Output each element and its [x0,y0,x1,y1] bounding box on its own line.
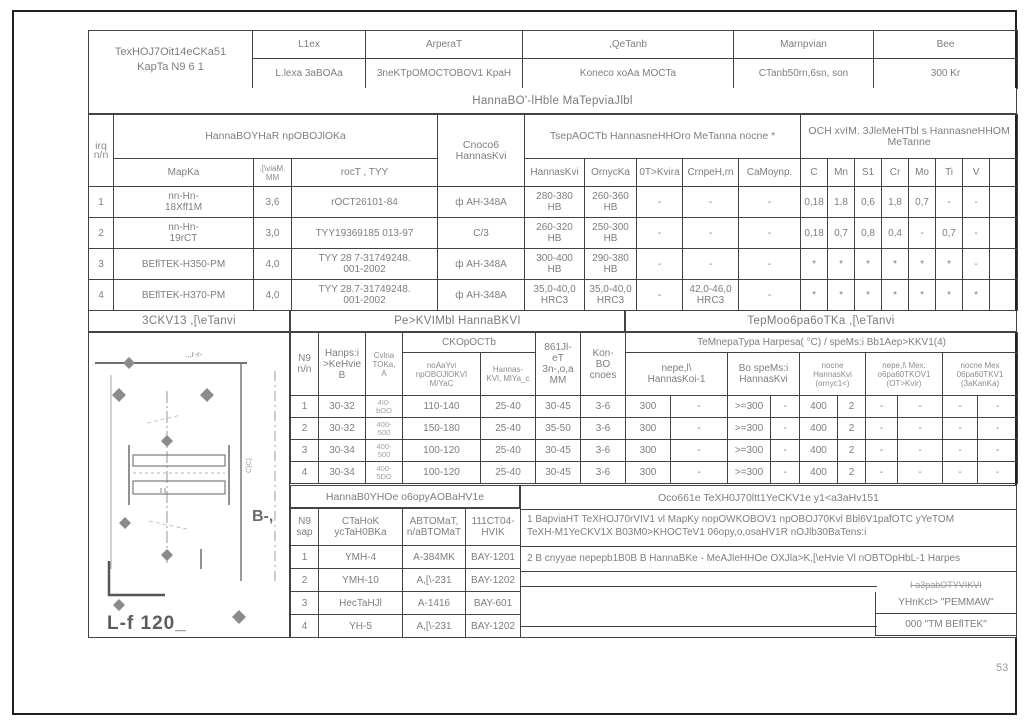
cell: YMH-4 [319,546,403,569]
cell: - [898,396,943,418]
cell: * [936,280,963,311]
equip-source-header: 111CT04- HVIK [466,509,521,546]
table-row: 230-32400- 500150-18025-4035-503-6300->=… [291,418,1018,440]
cell: - [866,462,898,484]
cell: - [963,187,990,218]
surfacing-speed-header: Hannas- KVl, MlYa_c [481,353,536,396]
cell: * [801,280,828,311]
col-header-weight: Bee [874,31,1018,59]
cell: ф AH-348A [438,187,525,218]
part-sketch: ..,r-r- C)C) B-, L-f 120_ [89,333,289,637]
method-header: Cnoco6 HannasKvi [438,115,525,187]
cell: 1 [291,546,319,569]
cell: * [909,280,936,311]
cell: - [637,187,683,218]
cell: 2 [838,462,866,484]
cell: A,[\-231 [403,615,466,638]
cell [990,280,1018,311]
cell: - [683,187,739,218]
cell: * [882,280,909,311]
cell: 260-320 HB [525,218,585,249]
dimension-label: L-f 120_ [107,613,187,634]
cell: - [637,218,683,249]
cell: 0,18 [801,218,828,249]
cell: * [855,280,882,311]
cell: YMH-10 [319,569,403,592]
cell: C/3 [438,218,525,249]
divider-line [521,626,877,627]
cell: - [978,440,1018,462]
layers-header: Kon- BO cnoes [581,333,626,396]
equip-machine-header: CTaHoK ycTaH0BKa [319,509,403,546]
cell: 2 [89,218,114,249]
cell: - [898,418,943,440]
cell: TYY 28.7-31749248. 001-2002 [292,280,438,311]
chem-col-blank [990,159,1018,187]
materials-num-header: irq n/n [89,115,114,187]
cell: 0,7 [909,187,936,218]
cell: 3 [89,249,114,280]
cell: 3-6 [581,440,626,462]
cell: >=300 [728,418,771,440]
wire-group-header: HannaBOYHaR npOBOJlOKa [114,115,438,159]
cell: - [739,280,801,311]
cell: * [801,249,828,280]
cell: rOCT26101-84 [292,187,438,218]
equipment-table: N9 sap CTaHoK ycTaH0BKa ABTOMaT, n/aBTOM… [290,508,521,638]
cell: BEflTEK-H350-PM [114,249,254,280]
cell: 4,0 [254,249,292,280]
cell: 2 [838,418,866,440]
cell: 30-34 [319,462,366,484]
cell: >=300 [728,462,771,484]
cell: - [739,218,801,249]
table-row: 2nn-Hn- 19rCT3,0TYY19369185 013-97C/3260… [89,218,1018,249]
cell: 290-380 HB [585,249,637,280]
cell: 100-120 [403,440,481,462]
table-row: 4YH-5A,[\-231BAY-1202 [291,615,521,638]
cell: - [739,187,801,218]
cell: 0,7 [828,218,855,249]
voltage-header: Hanps:i >KeHvie B [319,333,366,396]
cell: - [963,218,990,249]
cell: 30-45 [536,396,581,418]
cell: 25-40 [481,396,536,418]
view-label: B-, [252,508,273,525]
during-surfacing-header: Bo speMs:i HannasKvi [728,353,800,396]
cell: * [909,249,936,280]
electrode-header: 861Jl- eT 3n-,o,a MM [536,333,581,396]
cell: 30-34 [319,440,366,462]
chem-col-ti: Ti [936,159,963,187]
cell: >=300 [728,396,771,418]
cell: - [671,462,728,484]
developers-box: l-a3pabOTYVIKVI YHnKct> "PEMMAW" 000 "TM… [875,578,1017,636]
chem-col-c: C [801,159,828,187]
hardness-col-aging: CrnpeH,rn [683,159,739,187]
sketch-small-label: C)C) [246,458,253,473]
cell: 400 [800,440,838,462]
cell: 4 [89,280,114,311]
cell: - [866,396,898,418]
hardness-col-annealing: 0T>Kvira [637,159,683,187]
cell: - [943,440,978,462]
cell: A,[\-231 [403,569,466,592]
developers-header: l-a3pabOTYVIKVI [875,578,1017,592]
cell: YH-5 [319,615,403,638]
before-surfacing-header: nepe,l\ HannasKoi-1 [626,353,728,396]
cell: 3-6 [581,462,626,484]
cell: 260-360 HB [585,187,637,218]
cell: - [637,280,683,311]
cell: BAY-1201 [466,546,521,569]
cell: BAY-601 [466,592,521,615]
cell: - [739,249,801,280]
table-row: 1nn-Hn- 18Xff1M3,6rOCT26101-84ф AH-348A2… [89,187,1018,218]
cell: 3,6 [254,187,292,218]
cell: * [855,249,882,280]
cell: - [771,396,800,418]
cell: 400- 500 [366,440,403,462]
speed-group-header: CKOpOCTb [403,333,536,353]
sketch-section-title: 3CKV13 ,[\eTanvi [88,310,290,332]
equipment-section-title: HannaB0YHOe o6opyAOBaHV1e [290,485,520,508]
title-block-table: TexHOJ7Oit14eCKa51 KapTa N9 6 1 L1ex Arp… [88,30,1018,89]
cell: TYY 28 7-31749248. 001-2002 [292,249,438,280]
cell: 300-400 HB [525,249,585,280]
thermo-section-title: TepMoo6pa6oTKa ,[\eTanvi [625,310,1017,332]
part-value: Koneco xoAa MOCTa [523,59,734,89]
cell: 300 [626,440,671,462]
cell: 0,7 [936,218,963,249]
cell: 3-6 [581,396,626,418]
cell: - [943,418,978,440]
cell: 2 [838,440,866,462]
cell: - [866,440,898,462]
shop-value: L.lexa 3aBOAa [253,59,366,89]
table-row: 130-324I0- bOO110-14025-4030-453-6300->=… [291,396,1018,418]
col-header-part: ,QeTanb [523,31,734,59]
wire-feed-speed-header: noAaYvi npOBOJlOKVI M/YaC [403,353,481,396]
col-header-shop: L1ex [253,31,366,59]
cell: - [671,396,728,418]
cell: - [771,418,800,440]
temperature-group-header: TeMnepaTypa Harpesa( °C) / speMs:i Bb1Ae… [626,333,1018,353]
chem-col-cr: Cr [882,159,909,187]
part-sketch-panel: ..,r-r- C)C) B-, L-f 120_ [88,332,290,638]
after-machining-header: nocne Mex 06pa60TKV1 (3aKanKa) [943,353,1018,396]
cell: 400 [800,462,838,484]
chem-col-mo: Mo [909,159,936,187]
table-row: 1YMH-4A-384MKBAY-1201 [291,546,521,569]
material-value: CTanb50rn,6sn, son [734,59,874,89]
cell: 25-40 [481,418,536,440]
cell: - [671,418,728,440]
cell: A-384MK [403,546,466,569]
weld-marker-diamonds [112,357,246,624]
cell: - [963,249,990,280]
cell: 4 [291,462,319,484]
cell: ф AH-348A [438,280,525,311]
cell: 400 [800,418,838,440]
divider-line [521,586,877,587]
table-row: 3HecTaHJlA-1416BAY-601 [291,592,521,615]
cell: 0,18 [801,187,828,218]
cell: 150-180 [403,418,481,440]
cell: 400- 500 [366,418,403,440]
cell: - [978,418,1018,440]
cell [990,218,1018,249]
equipment-rows: 1YMH-4A-384MKBAY-12012YMH-10A,[\-231BAY-… [291,546,521,638]
cell: - [898,440,943,462]
cell: HecTaHJl [319,592,403,615]
cell: 250-300 HB [585,218,637,249]
cell: - [936,187,963,218]
equip-automat-header: ABTOMaT, n/aBTOMaT [403,509,466,546]
cell: 280-380 HB [525,187,585,218]
chem-col-mn: Mn [828,159,855,187]
cell: - [771,440,800,462]
cell: 3-6 [581,418,626,440]
cell: 3 [291,440,319,462]
note-item-2: 2 B cnyyae nepepb1B0B B HannaBKe - MeAJl… [521,547,1016,572]
current-header: Cvlna TOKa, A [366,333,403,396]
cell: A-1416 [403,592,466,615]
cell: 3,0 [254,218,292,249]
cell [990,249,1018,280]
cell: 110-140 [403,396,481,418]
cell: 30-45 [536,462,581,484]
cell: 25-40 [481,462,536,484]
note-item-1: 1 BapviaHT TeXHOJ70rVIV1 vl MapKy nopOWK… [521,510,1016,547]
cell: >=300 [728,440,771,462]
cell: 1,8 [828,187,855,218]
table-row: 4BEflTEK-H370-PM4,0TYY 28.7-31749248. 00… [89,280,1018,311]
cell: 400 [800,396,838,418]
cell: - [866,418,898,440]
cell: 300 [626,462,671,484]
cell: - [683,218,739,249]
developer-org-1: YHnKct> "PEMMAW" [875,592,1017,614]
modes-num-header: N9 n/n [291,333,319,396]
section-label: ..,r-r- [185,350,203,359]
cell: - [683,249,739,280]
equip-num-header: N9 sap [291,509,319,546]
cell: BEflTEK-H370-PM [114,280,254,311]
cell: 100-120 [403,462,481,484]
cell: - [943,396,978,418]
table-row: 2YMH-10A,[\-231BAY-1202 [291,569,521,592]
cell [990,187,1018,218]
cell: 1 [291,396,319,418]
cell: 3 [291,592,319,615]
cell: * [963,280,990,311]
hardness-col-surfacing: HannasKvi [525,159,585,187]
notes-panel: Oco661e TeXH0J70ltt1YeCKV1e y1<a3aHv151 … [520,485,1017,638]
card-title: TexHOJ7Oit14eCKa51 KapTa N9 6 1 [89,31,253,89]
materials-rows: 1nn-Hn- 18Xff1M3,6rOCT26101-84ф AH-348A2… [89,187,1018,311]
cell: - [671,440,728,462]
cell: - [637,249,683,280]
cell: - [771,462,800,484]
cell: 25-40 [481,440,536,462]
wire-col-diameter: ,[\viaM. MM [254,159,292,187]
cell: ф AH-348A [438,249,525,280]
cell: 0,8 [855,218,882,249]
cell: 42,0-46,0 HRC3 [683,280,739,311]
cell: 2 [291,418,319,440]
cell: 1 [89,187,114,218]
chem-group-header: OCH xvIM. 3JleMeHTbl s HannasneHHOM MeTa… [801,115,1018,159]
page-number: 53 [996,662,1008,674]
materials-section-title: HannaBO'-lHble MaTepviaJlbl [88,88,1017,114]
cell: 4,0 [254,280,292,311]
modes-table: N9 n/n Hanps:i >KeHvie B Cvlna TOKa, A C… [290,332,1018,484]
table-row: 330-34400- 500100-12025-4030-453-6300->=… [291,440,1018,462]
cell: BAY-1202 [466,615,521,638]
cell: 30-32 [319,396,366,418]
cell: 0,6 [855,187,882,218]
col-header-material: Marnpvian [734,31,874,59]
notes-title: Oco661e TeXH0J70ltt1YeCKV1e y1<a3aHv151 [521,486,1016,510]
wire-col-gost: rocT , TYY [292,159,438,187]
cell: - [909,218,936,249]
technology-card-sheet: TexHOJ7Oit14eCKa51 KapTa N9 6 1 L1ex Arp… [88,30,1017,638]
cell: nn-Hn- 18Xff1M [114,187,254,218]
cell: 300 [626,396,671,418]
cell: * [936,249,963,280]
developer-org-2: 000 "TM BEflTEK" [875,614,1017,636]
cell: 2 [291,569,319,592]
cell: 35,0-40,0 HRC3 [585,280,637,311]
modes-rows: 130-324I0- bOO110-14025-4030-453-6300->=… [291,396,1018,484]
cell: 30-45 [536,440,581,462]
col-header-unit: ArperaT [366,31,523,59]
cell: - [898,462,943,484]
chem-col-v: V [963,159,990,187]
cell: 400- 5DO [366,462,403,484]
cell: - [978,462,1018,484]
hardness-col-tempering: OrnycKa [585,159,637,187]
cell: - [943,462,978,484]
table-row: 3BEflTEK-H350-PM4,0TYY 28 7-31749248. 00… [89,249,1018,280]
hardness-col-selfhard: CaMoynp. [739,159,801,187]
cell: * [828,249,855,280]
modes-section-title: Pe>KVIMbl HannaBKVI [290,310,625,332]
cell: 2 [838,396,866,418]
cell: 35-50 [536,418,581,440]
table-row: 430-34400- 5DO100-12025-4030-453-6300->=… [291,462,1018,484]
cell: 1,8 [882,187,909,218]
before-machining-header: nepe,l\ Mex. o6pa60TKOV1 (OT>Kvir) [866,353,943,396]
unit-value: 3neKTpOMOCTOBOV1 KpaH [366,59,523,89]
cell: 300 [626,418,671,440]
weight-value: 300 Kr [874,59,1018,89]
after-surfacing-header: nocne HannasKvi (ornyc1<) [800,353,866,396]
materials-table: irq n/n HannaBOYHaR npOBOJlOKa Cnoco6 Ha… [88,114,1018,311]
cell: nn-Hn- 19rCT [114,218,254,249]
cell: 4I0- bOO [366,396,403,418]
cell: 4 [291,615,319,638]
cell: 30-32 [319,418,366,440]
wire-col-brand: MapKa [114,159,254,187]
chem-col-si: S1 [855,159,882,187]
cell: 35,0-40,0 HRC3 [525,280,585,311]
cell: - [978,396,1018,418]
cell: BAY-1202 [466,569,521,592]
cell: 0,4 [882,218,909,249]
cell: * [882,249,909,280]
cell: TYY19369185 013-97 [292,218,438,249]
cell: * [828,280,855,311]
hardness-group-header: TsepAOCTb HannasneHHOro MeTanna nocne * [525,115,801,159]
